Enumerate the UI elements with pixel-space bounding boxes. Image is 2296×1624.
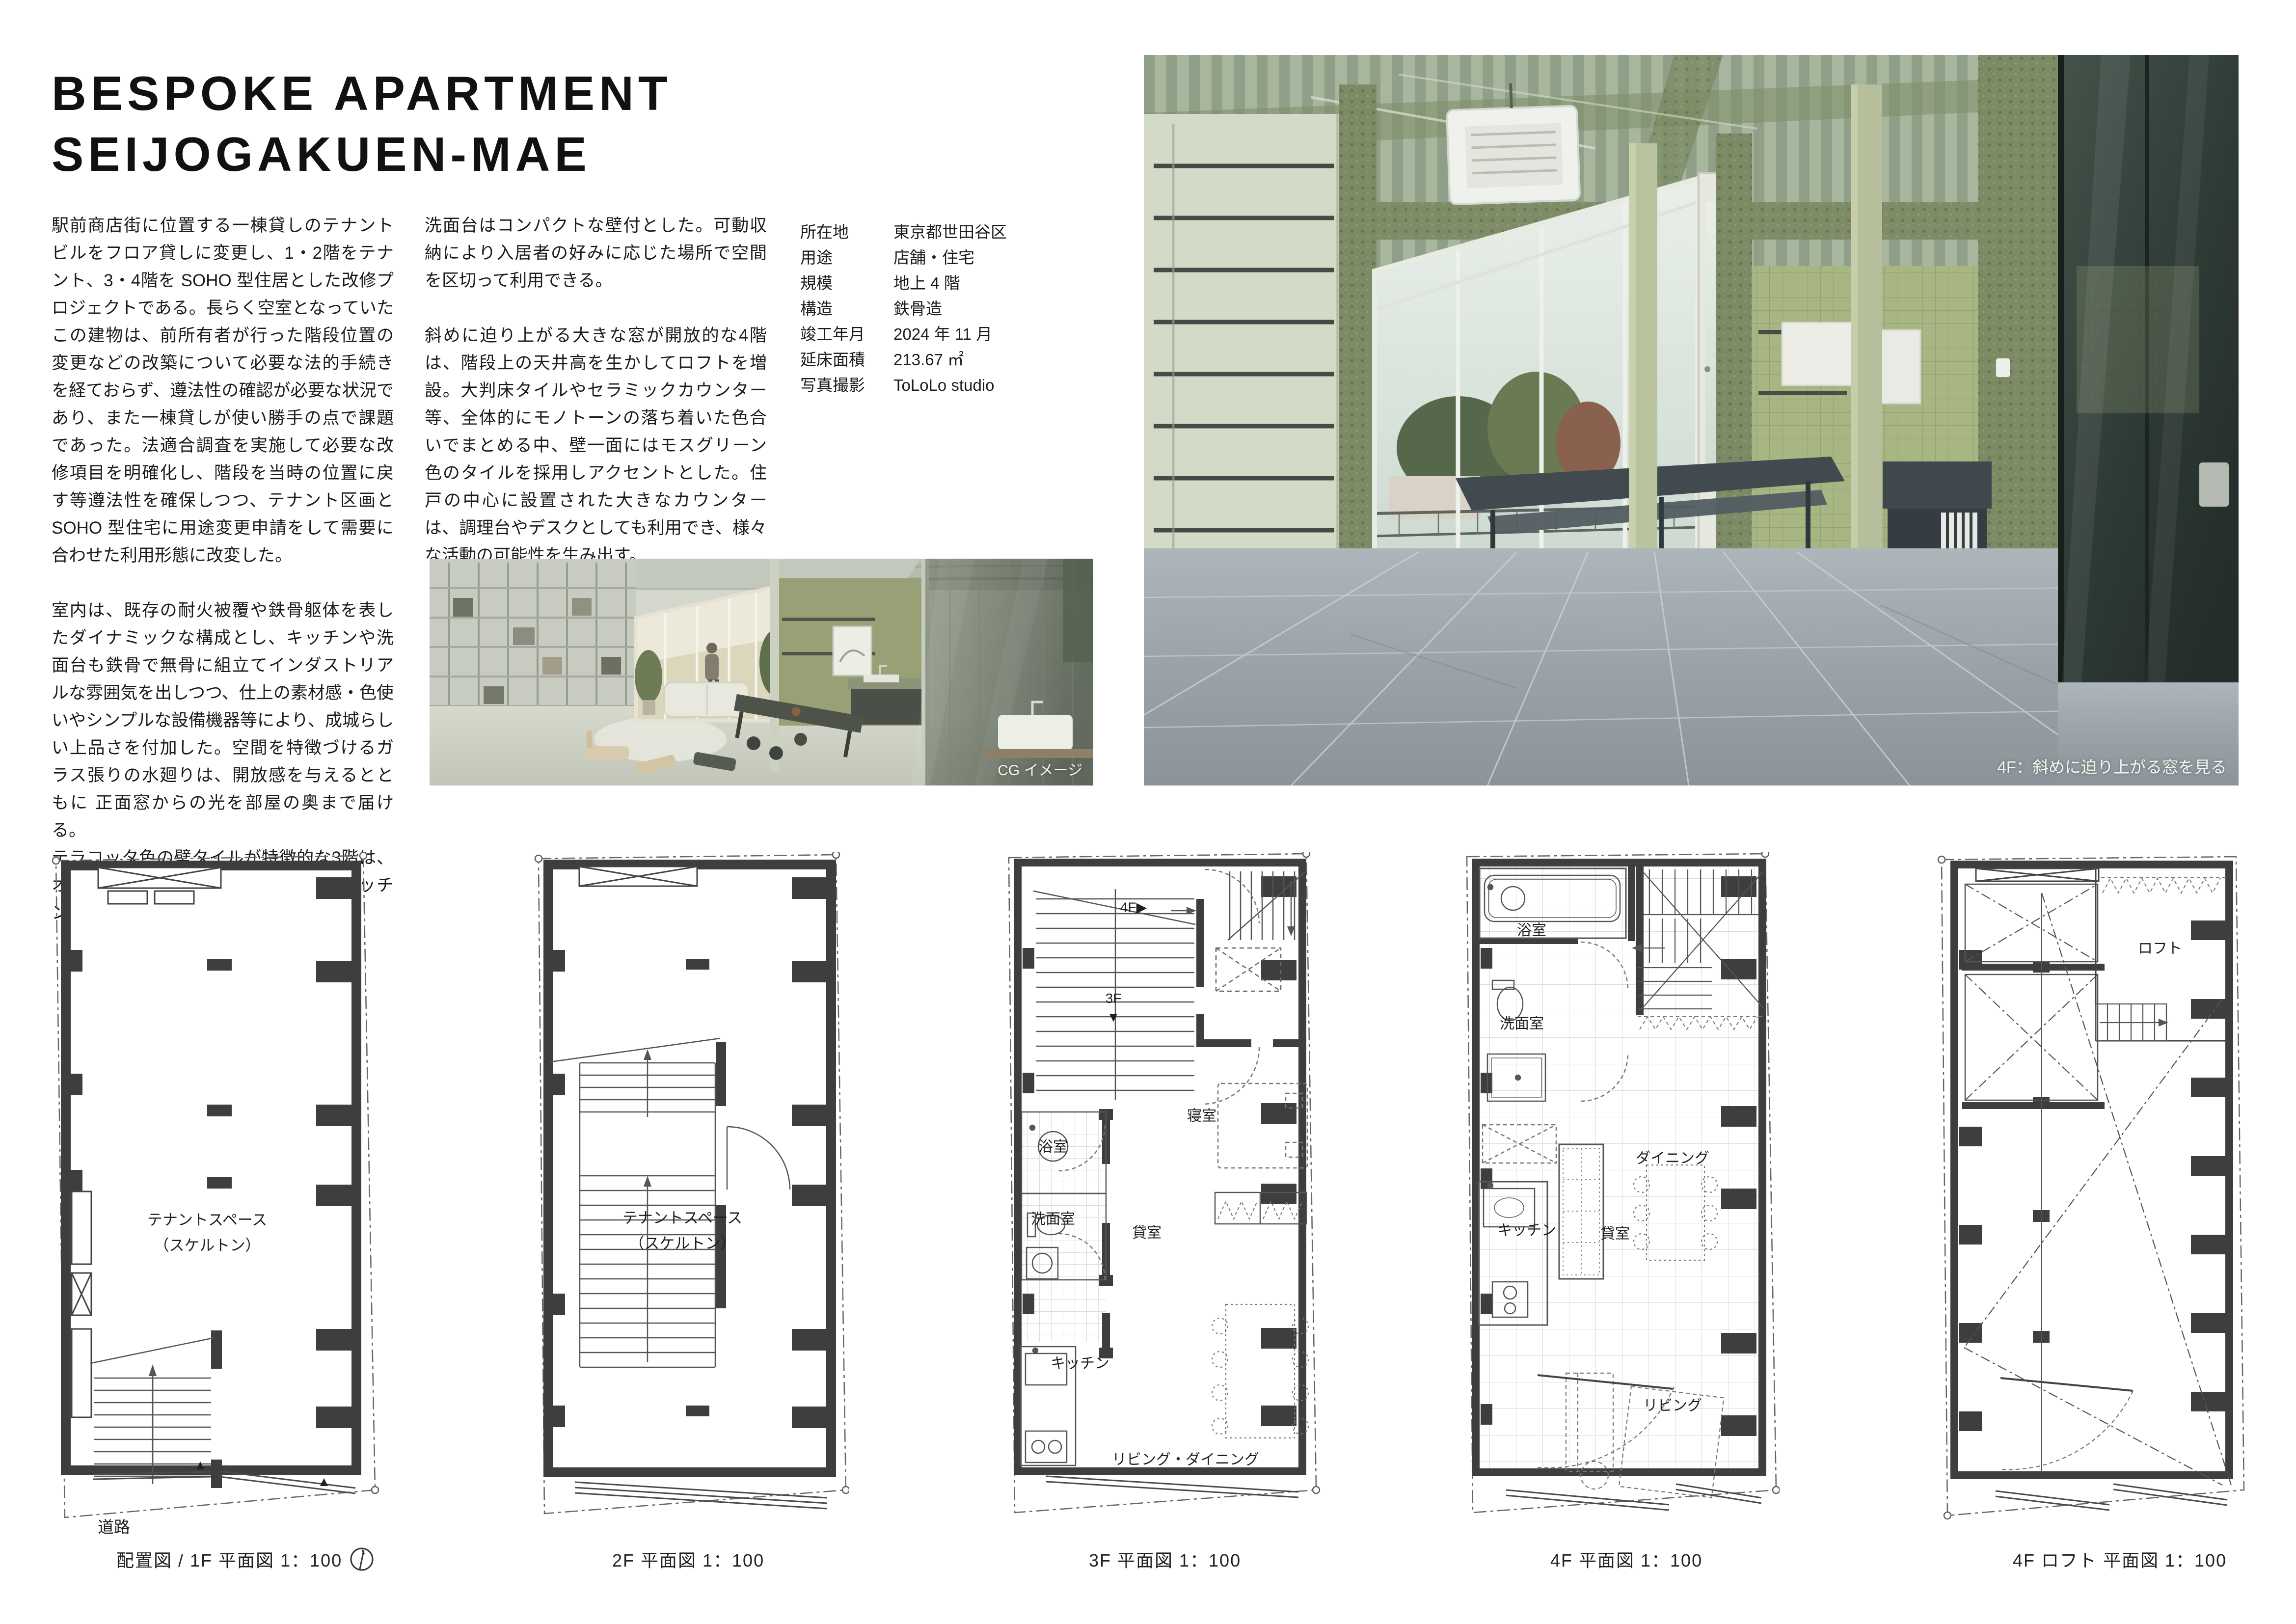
room-label-bedroom: 寝室 xyxy=(1187,1104,1216,1125)
floorplan-1f-drawing xyxy=(49,852,388,1546)
cg-render-graphic xyxy=(430,559,1093,785)
room-label-kitchen: キッチン xyxy=(1051,1351,1109,1373)
cg-stool xyxy=(794,733,807,746)
paragraph: 斜めに迫り上がる大きな窓が開放的な4階は、階段上の天井高を生かしてロフトを増設。… xyxy=(425,322,767,569)
info-value: 地上 4 階 xyxy=(893,271,960,296)
room-label-dining: ダイニング xyxy=(1636,1146,1709,1167)
cg-image-caption: CG イメージ xyxy=(998,758,1082,780)
info-label: 用途 xyxy=(800,245,893,271)
plan-caption-text: 配置図 / 1F 平面図 1：100 xyxy=(116,1546,342,1572)
room-label-kitchen: キッチン xyxy=(1497,1218,1556,1240)
stair-label-3f-arrow: ▼ xyxy=(1107,1009,1120,1025)
floorplan-2f: テナントスペース （スケルトン） xyxy=(533,852,849,1546)
floor-tile-grid xyxy=(1480,866,1758,1468)
plan-caption-text: 3F 平面図 1：100 xyxy=(1089,1546,1241,1572)
plan-caption-2f: 2F 平面図 1：100 xyxy=(612,1546,764,1572)
road-label: 道路 xyxy=(98,1514,130,1538)
room-label-washroom: 洗面室 xyxy=(1500,1011,1544,1033)
plan-caption-text: 2F 平面図 1：100 xyxy=(612,1546,764,1572)
room-label-tenant-space-note: （スケルトン） xyxy=(629,1231,736,1253)
floorplan-1f: テナントスペース （スケルトン） 道路 xyxy=(49,852,388,1546)
room-label-rental: 貸室 xyxy=(1600,1221,1630,1243)
top-shaft-box xyxy=(1976,868,2099,881)
info-row: 構造鉄骨造 xyxy=(800,296,1007,322)
plan-caption-text: 4F ロフト 平面図 1：100 xyxy=(2013,1546,2227,1572)
info-value: 2024 年 11 月 xyxy=(893,322,992,347)
plan-caption-4f: 4F 平面図 1：100 xyxy=(1550,1546,1702,1572)
info-label: 構造 xyxy=(800,296,893,322)
info-row: 竣工年月2024 年 11 月 xyxy=(800,322,1007,347)
storefront-glazing xyxy=(1506,1484,1761,1510)
page-title-line2: SEIJOGAKUEN-MAE xyxy=(52,124,672,185)
floorplan-4f-loft-drawing xyxy=(1922,852,2251,1546)
plan-caption-text: 4F 平面図 1：100 xyxy=(1550,1546,1702,1572)
north-arrow-icon xyxy=(349,1546,375,1572)
paragraph: 室内は、既存の耐火被覆や鉄骨躯体を表したダイナミックな構成とし、キッチンや洗面台… xyxy=(52,597,394,844)
page-title-line1: BESPOKE APARTMENT xyxy=(52,63,672,124)
floorplan-4f-drawing xyxy=(1463,852,1780,1546)
room-label-bath: 浴室 xyxy=(1038,1135,1068,1156)
shaft-box xyxy=(579,866,697,886)
kitchen-island xyxy=(1559,1144,1603,1279)
room-label-bath: 浴室 xyxy=(1517,918,1546,940)
plan-caption-4f-loft: 4F ロフト 平面図 1：100 xyxy=(2013,1546,2227,1572)
moss-column-left xyxy=(1339,84,1377,605)
floorplan-4f: 浴室 洗面室 キッチン 貸室 ダイニング リビング xyxy=(1463,852,1780,1546)
storefront-glazing xyxy=(575,1482,827,1509)
room-label-living: リビング xyxy=(1643,1393,1702,1415)
plan-caption-3f: 3F 平面図 1：100 xyxy=(1089,1546,1241,1572)
exterior-walls xyxy=(548,865,831,1472)
paragraph: 駅前商店街に位置する一棟貸しのテナントビルをフロア貸しに変更し、1・2階をテナン… xyxy=(52,212,394,569)
cg-stool xyxy=(747,736,760,750)
floorplan-4f-loft: ロフト xyxy=(1922,852,2251,1546)
room-label-tenant-space: テナントスペース xyxy=(622,1206,742,1228)
info-value: 東京都世田谷区 xyxy=(893,219,1007,245)
info-row: 延床面積213.67 ㎡ xyxy=(800,347,1007,373)
storefront-glazing xyxy=(1046,1476,1298,1497)
info-value: 鉄骨造 xyxy=(893,296,942,322)
info-value: ToLoLo studio xyxy=(893,373,995,398)
floorplan-3f-drawing xyxy=(1004,852,1321,1546)
cg-glass-reflection xyxy=(911,559,1093,785)
main-photo: 4F：斜めに迫り上がる窓を見る xyxy=(1144,55,2239,785)
glass-partition xyxy=(2058,55,2239,785)
plan-caption-1f: 配置図 / 1F 平面図 1：100 xyxy=(116,1546,375,1572)
info-label: 竣工年月 xyxy=(800,322,893,347)
stair-label-4f: 4F▶ xyxy=(1120,899,1147,916)
info-row: 所在地東京都世田谷区 xyxy=(800,219,1007,245)
room-label-tenant-space: テナントスペース xyxy=(147,1208,267,1230)
stair-label-3f: 3F xyxy=(1106,991,1122,1006)
main-photo-caption: 4F：斜めに迫り上がる窓を見る xyxy=(1997,754,2227,778)
cg-stool xyxy=(769,746,783,760)
info-label: 写真撮影 xyxy=(800,373,893,398)
room-label-rental: 貸室 xyxy=(1132,1220,1162,1242)
paragraph: 洗面台はコンパクトな壁付とした。可動収納により入居者の好みに応じた場所で空間を区… xyxy=(425,212,767,295)
wall-niches xyxy=(72,1191,91,1417)
intro-text-column-1: 駅前商店街に位置する一棟貸しのテナントビルをフロア貸しに変更し、1・2階をテナン… xyxy=(52,212,394,927)
info-label: 規模 xyxy=(800,271,893,296)
cg-render-image: CG イメージ xyxy=(430,559,1093,785)
exterior-walls xyxy=(66,866,356,1470)
info-value: 店舗・住宅 xyxy=(893,245,974,271)
room-label-washroom: 洗面室 xyxy=(1031,1207,1075,1228)
floorplan-3f: 4F▶ 3F ▼ 寝室 浴室 洗面室 貸室 キッチン リビング・ダイニング xyxy=(1004,852,1321,1546)
main-photo-graphic xyxy=(1144,55,2239,785)
info-value: 213.67 ㎡ xyxy=(893,347,964,373)
room-label-tenant-space-note: （スケルトン） xyxy=(154,1233,261,1255)
info-row: 規模地上 4 階 xyxy=(800,271,1007,296)
left-shelf-wall xyxy=(1144,114,1350,605)
info-row: 用途店舗・住宅 xyxy=(800,245,1007,271)
info-row: 写真撮影ToLoLo studio xyxy=(800,373,1007,398)
storefront-glazing xyxy=(1996,1484,2227,1510)
project-info-table: 所在地東京都世田谷区 用途店舗・住宅 規模地上 4 階 構造鉄骨造 竣工年月20… xyxy=(800,219,1007,398)
title-block: BESPOKE APARTMENT SEIJOGAKUEN-MAE xyxy=(52,63,672,185)
right-moss-wall xyxy=(1978,55,2063,600)
info-label: 所在地 xyxy=(800,219,893,245)
room-label-living-dining: リビング・ダイニング xyxy=(1112,1447,1259,1469)
room-label-loft: ロフト xyxy=(2138,936,2182,958)
info-label: 延床面積 xyxy=(800,347,893,373)
floorplan-2f-drawing xyxy=(533,852,849,1546)
presentation-board: BESPOKE APARTMENT SEIJOGAKUEN-MAE 駅前商店街に… xyxy=(0,0,2296,1624)
intro-text-column-2: 洗面台はコンパクトな壁付とした。可動収納により入居者の好みに応じた場所で空間を区… xyxy=(425,212,767,569)
exterior-walls xyxy=(1954,865,2229,1475)
